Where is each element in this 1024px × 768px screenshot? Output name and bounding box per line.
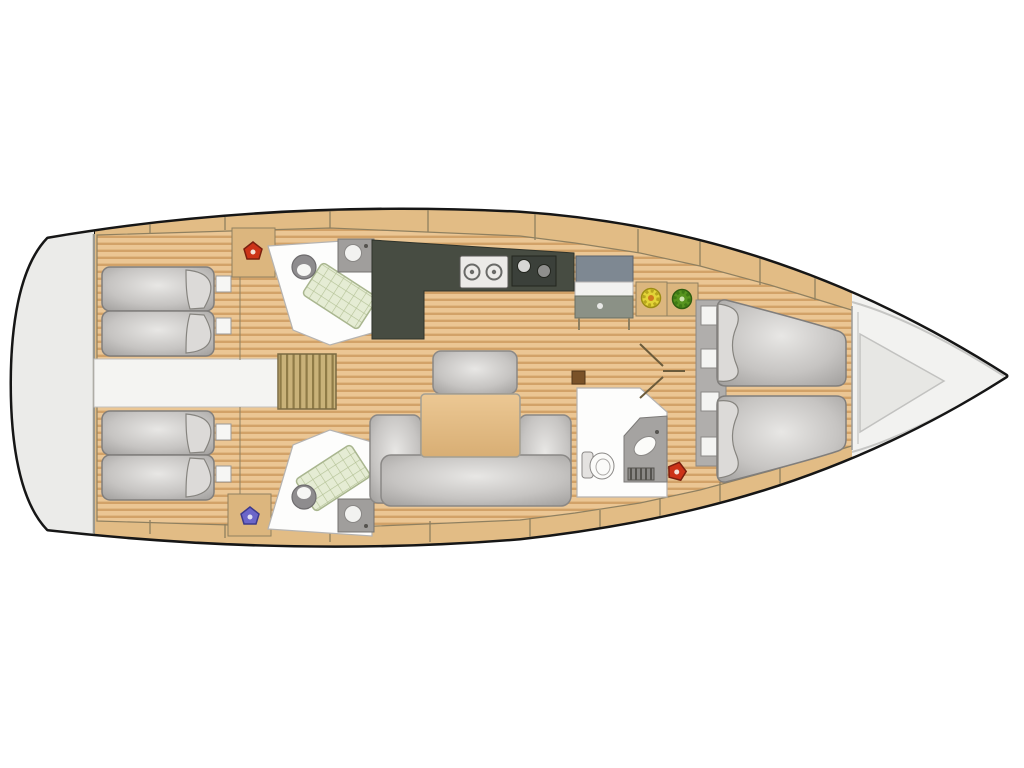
stern-platform (10, 230, 94, 538)
engine-compartment (94, 359, 279, 407)
green-rosette-icon (673, 290, 692, 309)
galley-sink (512, 256, 556, 286)
yellow-rosette-icon (642, 289, 661, 308)
shelf (216, 318, 231, 334)
shelf (216, 424, 231, 440)
companionway-steps (278, 354, 336, 409)
shelf (216, 276, 231, 292)
washbasin (338, 239, 374, 272)
stove (460, 256, 508, 288)
floorplan-canvas (0, 0, 1024, 768)
mast-step (572, 371, 585, 384)
salon-bench-top (433, 351, 517, 394)
toilet (292, 255, 316, 279)
marker-panels (636, 282, 698, 316)
toilet (582, 452, 614, 479)
yacht-floorplan-page (0, 0, 1024, 768)
toilet (292, 485, 316, 509)
salon-bench-bottom (381, 455, 571, 506)
washbasin (338, 499, 374, 532)
shelf (216, 466, 231, 482)
vent-grill (628, 468, 654, 480)
salon-table (421, 394, 520, 457)
